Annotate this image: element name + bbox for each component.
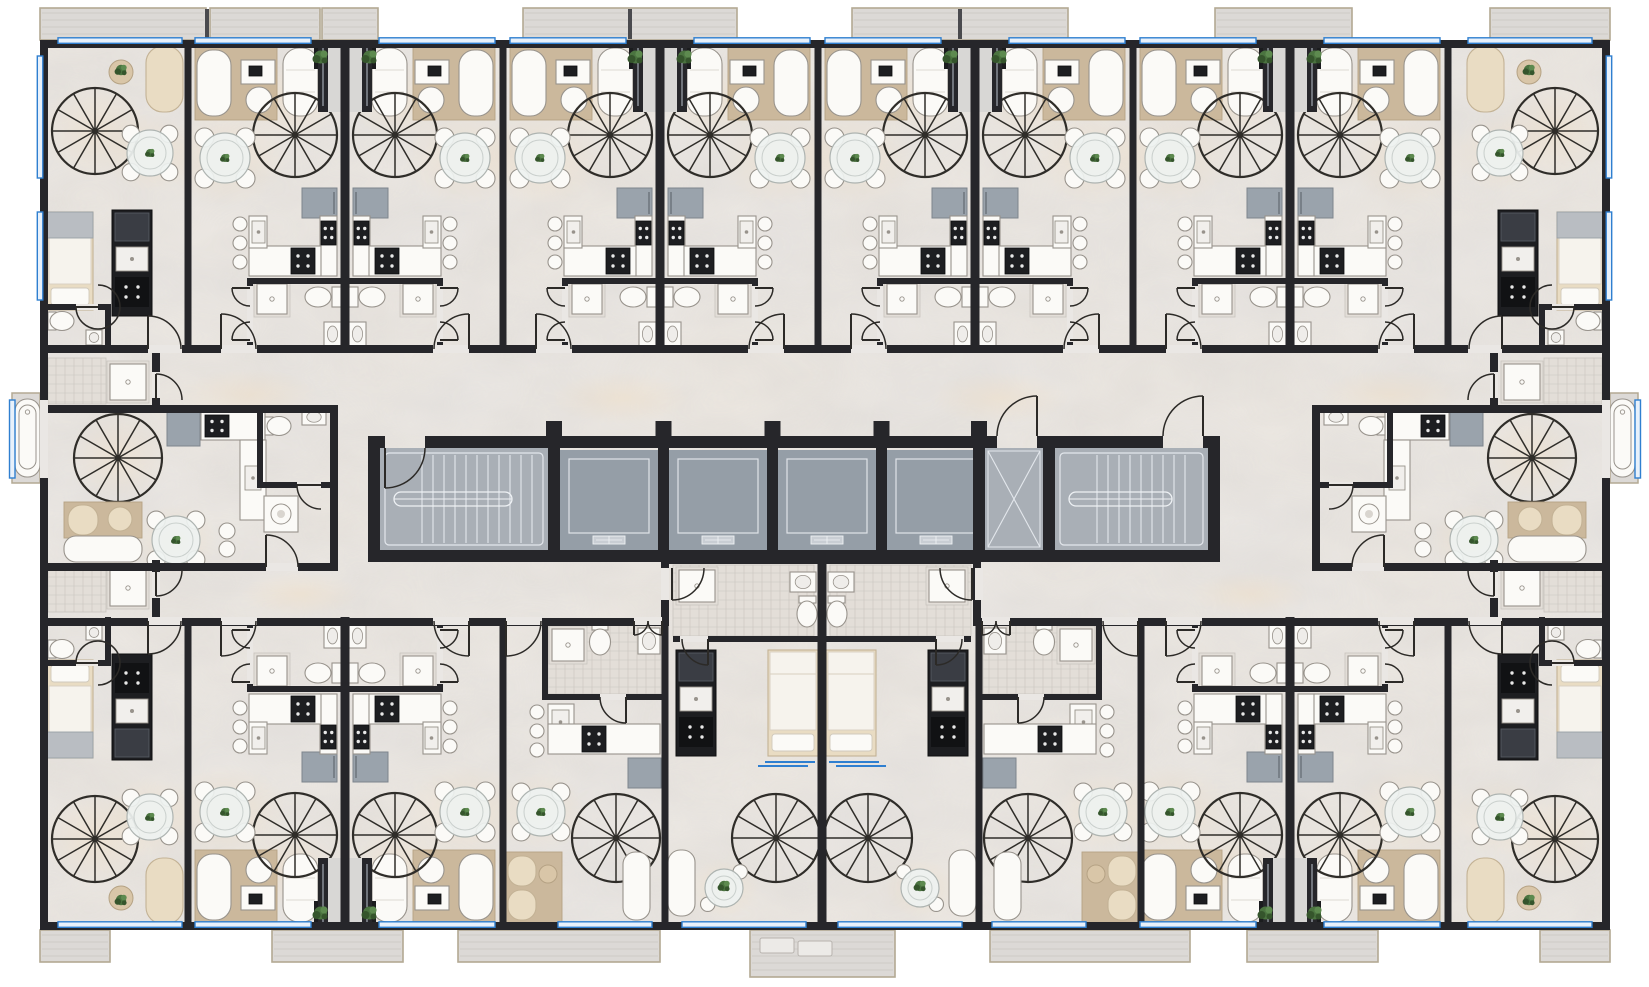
- sink: [1269, 322, 1286, 346]
- sofa: [687, 48, 722, 116]
- balcony: [40, 8, 209, 40]
- sofa: [372, 854, 407, 922]
- fridge: [983, 188, 1018, 218]
- chaise-lounge: [1089, 50, 1123, 116]
- side-table: [539, 865, 557, 883]
- washer: [264, 496, 298, 532]
- bar-stool: [530, 724, 544, 738]
- window: [838, 922, 962, 928]
- cooktop: [375, 248, 399, 274]
- desk-chair: [561, 87, 587, 113]
- sink: [979, 322, 996, 346]
- desk: [415, 886, 449, 910]
- bed: [768, 650, 818, 756]
- balcony: [272, 930, 403, 962]
- cooktop: [1038, 726, 1062, 752]
- bar-stool: [1178, 739, 1192, 753]
- sink: [324, 624, 341, 648]
- toilet: [935, 287, 971, 307]
- shower: [1199, 653, 1235, 689]
- toilet: [265, 417, 291, 436]
- bar-stool: [530, 743, 544, 757]
- cooktop: [291, 248, 315, 274]
- desk: [1186, 60, 1220, 84]
- bar-stool: [233, 217, 247, 231]
- toilet: [1250, 663, 1286, 683]
- bar-stool: [219, 541, 235, 557]
- window: [694, 38, 810, 44]
- sink: [86, 330, 102, 345]
- elevator-2: [669, 450, 767, 550]
- balcony: [210, 8, 320, 40]
- bar-stool: [1073, 236, 1087, 250]
- bathroom: [790, 572, 816, 592]
- sink: [324, 322, 341, 346]
- bathroom: [797, 596, 817, 627]
- cooktop: [1005, 248, 1029, 274]
- shower: [926, 567, 968, 605]
- fridge: [668, 188, 703, 218]
- bed-bench: [1557, 212, 1603, 238]
- toilet: [305, 663, 341, 683]
- window: [10, 400, 16, 478]
- desk-chair: [733, 87, 759, 113]
- shower-room: [1501, 566, 1602, 612]
- bar-stool: [1415, 541, 1431, 557]
- sofa: [372, 48, 407, 116]
- desk-chair: [246, 857, 272, 883]
- shower: [254, 653, 290, 689]
- bar-stool: [1100, 724, 1114, 738]
- armchair: [1108, 890, 1136, 920]
- chaise-lounge: [459, 50, 493, 116]
- shower: [1345, 281, 1381, 317]
- window: [195, 922, 311, 928]
- balcony: [322, 8, 378, 40]
- fridge: [932, 188, 967, 218]
- desk: [871, 60, 905, 84]
- armchair: [508, 856, 536, 886]
- cooktop: [690, 248, 714, 274]
- floor-plan-render: [0, 0, 1649, 987]
- bar-stool: [1388, 236, 1402, 250]
- cooktop: [921, 248, 945, 274]
- armchair: [108, 507, 132, 531]
- tiled-floor: [48, 566, 106, 612]
- balcony: [1215, 8, 1352, 40]
- toilet: [620, 287, 656, 307]
- cooktop: [1236, 248, 1260, 274]
- toilet: [349, 663, 385, 683]
- toilet: [1294, 663, 1330, 683]
- window: [825, 38, 941, 44]
- shower: [107, 567, 149, 609]
- bed-bench: [47, 732, 93, 758]
- fridge: [1298, 188, 1333, 218]
- window: [1140, 38, 1256, 44]
- sink: [86, 625, 102, 640]
- sofa: [994, 852, 1021, 920]
- shower: [1345, 653, 1381, 689]
- elevator-1: [560, 450, 658, 550]
- balcony: [990, 930, 1190, 962]
- bar-stool: [443, 701, 457, 715]
- bar-stool: [1178, 236, 1192, 250]
- window: [558, 922, 652, 928]
- chaise-lounge: [197, 854, 231, 920]
- kitchen-galley: [1498, 210, 1538, 316]
- balcony: [1247, 930, 1378, 962]
- desk: [730, 60, 764, 84]
- fridge: [167, 411, 200, 446]
- sofa: [1317, 48, 1352, 116]
- bar-stool: [1100, 705, 1114, 719]
- bathtub-bay: [1610, 393, 1638, 483]
- window: [195, 38, 311, 44]
- kitchen-galley: [676, 650, 716, 756]
- spiral-staircase: [1488, 414, 1576, 502]
- sink: [1294, 624, 1311, 648]
- shower: [400, 653, 436, 689]
- bar-stool: [863, 255, 877, 269]
- bar-stool: [863, 217, 877, 231]
- bar-stool: [1100, 743, 1114, 757]
- sink: [349, 322, 366, 346]
- desk: [556, 60, 590, 84]
- bar-stool: [1178, 255, 1192, 269]
- bathroom: [590, 622, 611, 655]
- desk: [415, 60, 449, 84]
- bar-stool: [1388, 255, 1402, 269]
- bar-stool: [233, 255, 247, 269]
- floor-plan-svg: [0, 0, 1649, 987]
- desk-chair: [418, 857, 444, 883]
- elevator-3: [778, 450, 876, 550]
- sink: [349, 624, 366, 648]
- bar-stool: [219, 523, 235, 539]
- window: [37, 56, 43, 178]
- window: [58, 38, 182, 44]
- shower: [569, 281, 605, 317]
- bar-stool: [758, 217, 772, 231]
- sofa: [1508, 536, 1586, 562]
- fridge: [1298, 752, 1333, 782]
- shower-room: [1501, 358, 1602, 404]
- window: [1468, 38, 1592, 44]
- armchair: [68, 505, 98, 535]
- bathtub: [15, 399, 40, 477]
- sink: [954, 322, 971, 346]
- armchair: [1108, 856, 1136, 886]
- fridge: [1247, 752, 1282, 782]
- bathroom: [638, 628, 660, 654]
- kitchen-galley: [112, 210, 152, 316]
- window: [58, 922, 182, 928]
- window: [37, 212, 43, 300]
- kitchen-galley: [112, 654, 152, 760]
- cooktop: [1320, 696, 1344, 722]
- cooktop: [375, 696, 399, 722]
- window: [379, 922, 495, 928]
- bar-stool: [548, 236, 562, 250]
- fridge: [983, 758, 1016, 788]
- sofa: [1228, 854, 1263, 922]
- window: [1324, 922, 1440, 928]
- fridge: [628, 758, 661, 788]
- fridge: [1450, 411, 1483, 446]
- bed-bench: [1557, 732, 1603, 758]
- balcony: [750, 930, 895, 977]
- desk-chair: [1191, 87, 1217, 113]
- bar-stool: [233, 236, 247, 250]
- shower-room: [48, 358, 149, 404]
- toilet: [349, 287, 385, 307]
- toilet: [1034, 622, 1055, 655]
- cooktop: [1421, 415, 1445, 437]
- toilet: [48, 312, 74, 331]
- sink: [1294, 322, 1311, 346]
- cooktop: [1320, 248, 1344, 274]
- window: [1324, 38, 1440, 44]
- shower: [1199, 281, 1235, 317]
- bathroom: [1034, 622, 1055, 655]
- bar-stool: [1178, 217, 1192, 231]
- balcony: [40, 930, 110, 962]
- chaise-lounge: [1142, 854, 1176, 920]
- building-core: [380, 448, 1208, 550]
- bar-stool: [863, 236, 877, 250]
- balcony: [1540, 930, 1610, 962]
- fridge: [302, 752, 337, 782]
- sink: [1548, 330, 1564, 345]
- sink: [638, 628, 660, 654]
- shower: [715, 281, 751, 317]
- desk-chair: [246, 87, 272, 113]
- desk: [1186, 886, 1220, 910]
- desk-chair: [1048, 87, 1074, 113]
- window: [1009, 38, 1125, 44]
- chaise-lounge: [827, 50, 861, 116]
- bathtub-bay: [12, 393, 40, 483]
- cooktop: [291, 696, 315, 722]
- bathtub: [1610, 399, 1635, 477]
- cooktop: [1236, 696, 1260, 722]
- window: [379, 38, 495, 44]
- bathroom: [984, 628, 1006, 654]
- bed: [826, 650, 876, 756]
- fridge: [353, 752, 388, 782]
- cooktop: [606, 248, 630, 274]
- shower: [676, 567, 718, 605]
- shower-room: [48, 566, 149, 612]
- cooktop: [205, 415, 229, 437]
- side-table: [1087, 865, 1105, 883]
- tiled-floor: [1544, 358, 1602, 404]
- window: [1468, 922, 1592, 928]
- kitchen-galley: [928, 650, 968, 756]
- balcony: [852, 8, 1068, 40]
- sink: [790, 572, 816, 592]
- shower: [1501, 567, 1543, 609]
- desk: [241, 60, 275, 84]
- chaise-lounge: [512, 50, 546, 116]
- bar-stool: [443, 236, 457, 250]
- toilet: [1294, 287, 1330, 307]
- bar-stool: [443, 720, 457, 734]
- shower: [1057, 626, 1095, 664]
- window: [1635, 400, 1641, 478]
- bar-stool: [443, 739, 457, 753]
- bar-stool: [1415, 523, 1431, 539]
- sofa: [1317, 854, 1352, 922]
- toilet: [1576, 312, 1602, 331]
- sofa: [949, 850, 976, 916]
- sink: [1269, 624, 1286, 648]
- shower: [549, 626, 587, 664]
- toilet: [979, 287, 1015, 307]
- bar-stool: [233, 739, 247, 753]
- window: [1140, 922, 1256, 928]
- bar-stool: [548, 255, 562, 269]
- bar-stool: [1178, 720, 1192, 734]
- shower: [400, 281, 436, 317]
- bar-stool: [1178, 701, 1192, 715]
- chaise-lounge: [197, 50, 231, 116]
- window: [682, 922, 806, 928]
- chaise-lounge: [459, 854, 493, 920]
- sofa: [283, 854, 318, 922]
- bar-stool: [233, 701, 247, 715]
- desk-chair: [1363, 857, 1389, 883]
- shower: [1030, 281, 1066, 317]
- elevator-4: [887, 450, 985, 550]
- bar-stool: [233, 720, 247, 734]
- desk: [1360, 886, 1394, 910]
- sofa: [623, 852, 650, 920]
- toilet: [827, 596, 847, 627]
- desk-chair: [1191, 857, 1217, 883]
- armchair: [1552, 505, 1582, 535]
- bar-stool: [443, 255, 457, 269]
- chaise-lounge: [1404, 854, 1438, 920]
- fridge: [1247, 188, 1282, 218]
- lounge-chair: [1467, 46, 1504, 112]
- sink: [828, 572, 854, 592]
- desk: [1360, 60, 1394, 84]
- shower: [884, 281, 920, 317]
- bar-stool: [548, 217, 562, 231]
- tiled-floor: [1544, 566, 1602, 612]
- toilet: [1250, 287, 1286, 307]
- stairwell-right: [1055, 448, 1208, 550]
- window: [1606, 212, 1612, 300]
- bar-stool: [443, 217, 457, 231]
- cooktop: [582, 726, 606, 752]
- desk: [241, 886, 275, 910]
- toilet: [797, 596, 817, 627]
- bar-stool: [1073, 255, 1087, 269]
- toilet: [48, 640, 74, 659]
- toilet: [590, 622, 611, 655]
- bar-stool: [1388, 739, 1402, 753]
- desk-chair: [876, 87, 902, 113]
- chaise-lounge: [1404, 50, 1438, 116]
- sink: [664, 322, 681, 346]
- toilet: [1359, 417, 1385, 436]
- shower: [254, 281, 290, 317]
- balcony: [1490, 8, 1610, 40]
- balcony: [458, 930, 660, 962]
- toilet: [664, 287, 700, 307]
- lounge-chair: [146, 858, 183, 924]
- armchair: [1518, 507, 1542, 531]
- toilet: [305, 287, 341, 307]
- bed-bench: [47, 212, 93, 238]
- balcony: [523, 8, 737, 40]
- bathroom: [828, 572, 854, 592]
- washer: [1352, 496, 1386, 532]
- bar-stool: [1388, 720, 1402, 734]
- sink: [984, 628, 1006, 654]
- bar-stool: [530, 705, 544, 719]
- sink: [639, 322, 656, 346]
- window: [1606, 56, 1612, 178]
- desk-chair: [1363, 87, 1389, 113]
- window: [992, 922, 1086, 928]
- sofa: [668, 850, 695, 916]
- toilet: [1576, 640, 1602, 659]
- fridge: [617, 188, 652, 218]
- bathroom: [827, 596, 847, 627]
- shower: [107, 361, 149, 403]
- chaise-lounge: [1142, 50, 1176, 116]
- ventilation-shaft: [985, 448, 1043, 550]
- fridge: [353, 188, 388, 218]
- spiral-staircase: [74, 414, 162, 502]
- tiled-floor: [48, 358, 106, 404]
- chaise-lounge: [774, 50, 808, 116]
- lounge-chair: [1467, 858, 1504, 924]
- shower: [1501, 361, 1543, 403]
- armchair: [508, 890, 536, 920]
- stairwell-left: [380, 448, 548, 550]
- desk: [1045, 60, 1079, 84]
- sink: [1548, 625, 1564, 640]
- lounge-chair: [146, 46, 183, 112]
- sofa: [64, 536, 142, 562]
- bar-stool: [1388, 217, 1402, 231]
- bar-stool: [758, 255, 772, 269]
- sofa: [1002, 48, 1037, 116]
- bar-stool: [758, 236, 772, 250]
- kitchen-galley: [1498, 654, 1538, 760]
- fridge: [302, 188, 337, 218]
- window: [510, 38, 626, 44]
- desk-chair: [418, 87, 444, 113]
- bar-stool: [1388, 701, 1402, 715]
- bar-stool: [1073, 217, 1087, 231]
